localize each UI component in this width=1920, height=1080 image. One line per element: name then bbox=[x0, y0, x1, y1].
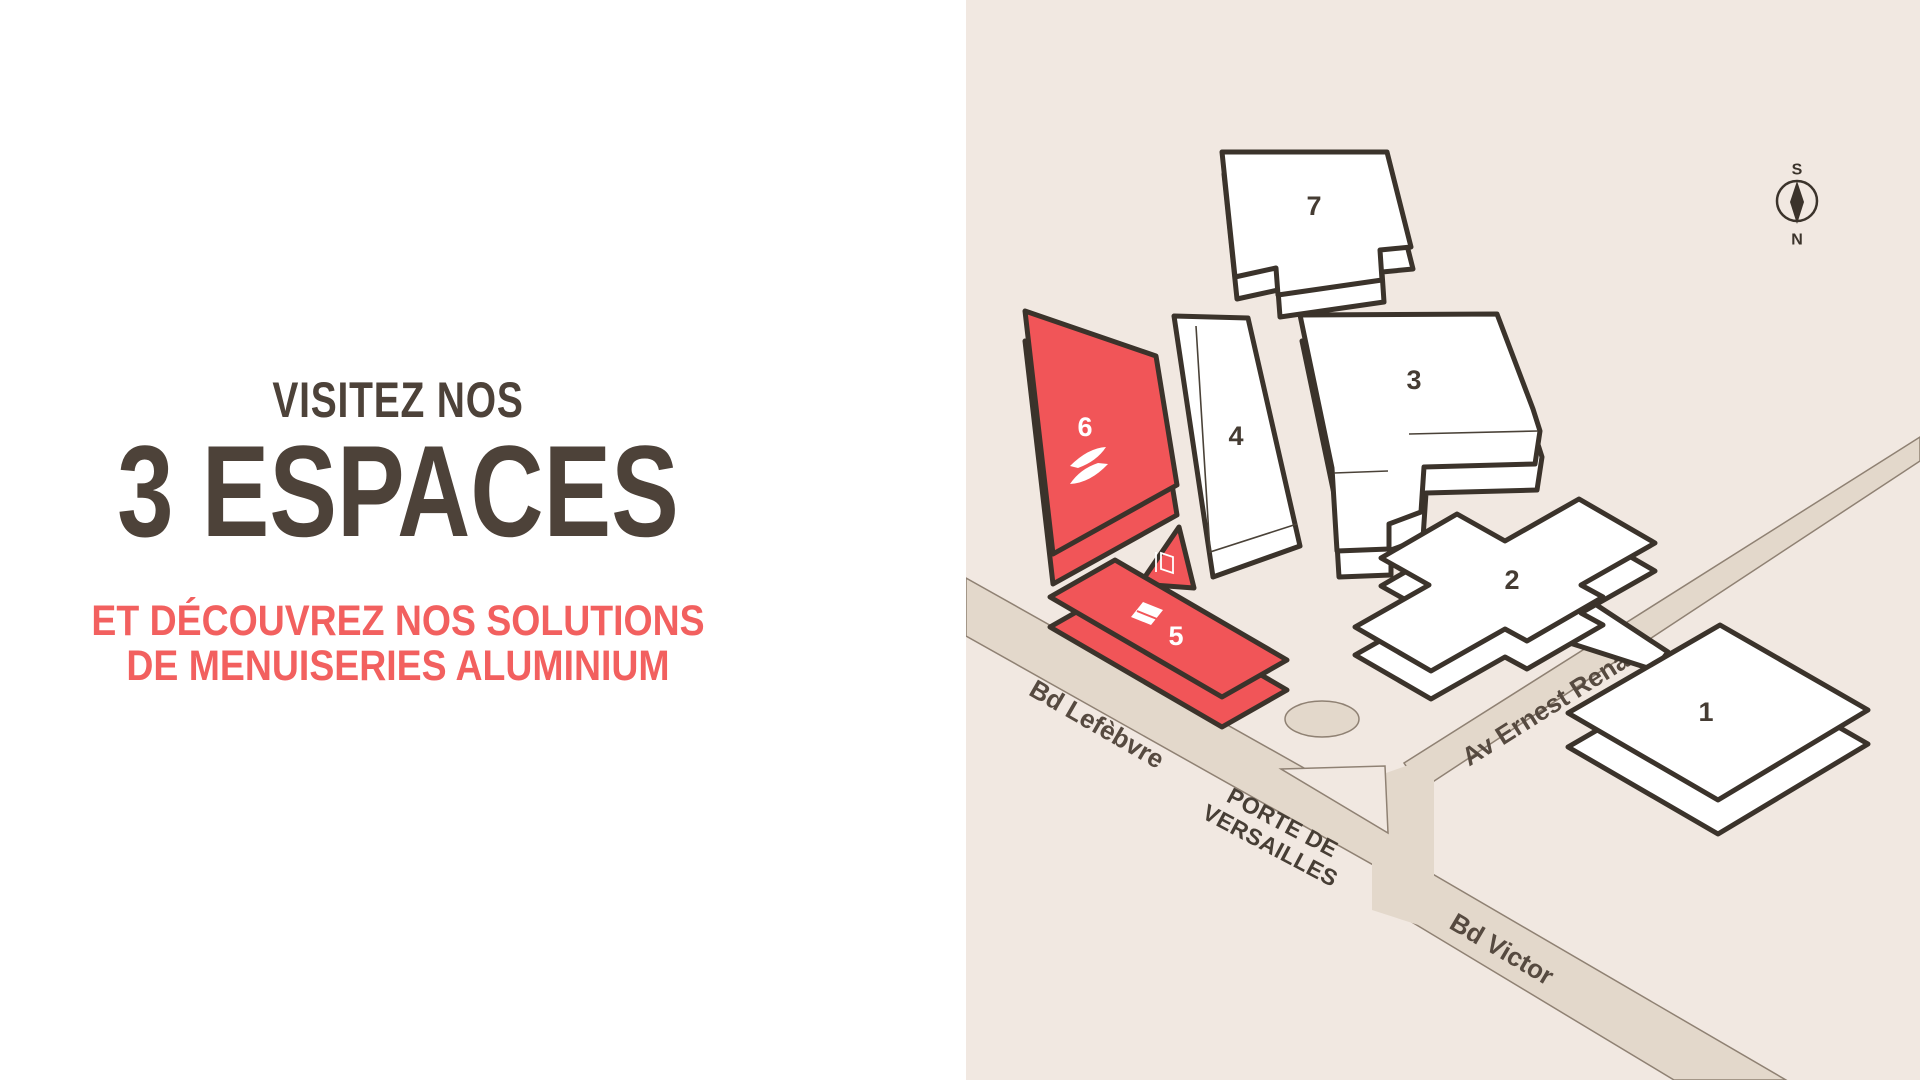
roundabout bbox=[1285, 701, 1359, 737]
hall-3-number: 3 bbox=[1406, 365, 1421, 395]
hall-5-number: 5 bbox=[1168, 621, 1183, 651]
page: VISITEZ NOS 3 ESPACES ET DÉCOUVREZ NOS S… bbox=[0, 0, 1920, 1080]
expo-map: Bd Lefèbvre PORTE DE VERSAILLES Av Ernes… bbox=[0, 0, 1920, 1080]
hall-1-number: 1 bbox=[1698, 697, 1713, 727]
hall-2-number: 2 bbox=[1504, 565, 1519, 595]
compass-north-label: N bbox=[1791, 232, 1803, 249]
hall-7-number: 7 bbox=[1306, 191, 1321, 221]
hall-4-number: 4 bbox=[1228, 421, 1243, 451]
compass-south-label: S bbox=[1792, 162, 1803, 179]
hall-6-number: 6 bbox=[1077, 412, 1092, 442]
hall-7 bbox=[1222, 152, 1413, 317]
